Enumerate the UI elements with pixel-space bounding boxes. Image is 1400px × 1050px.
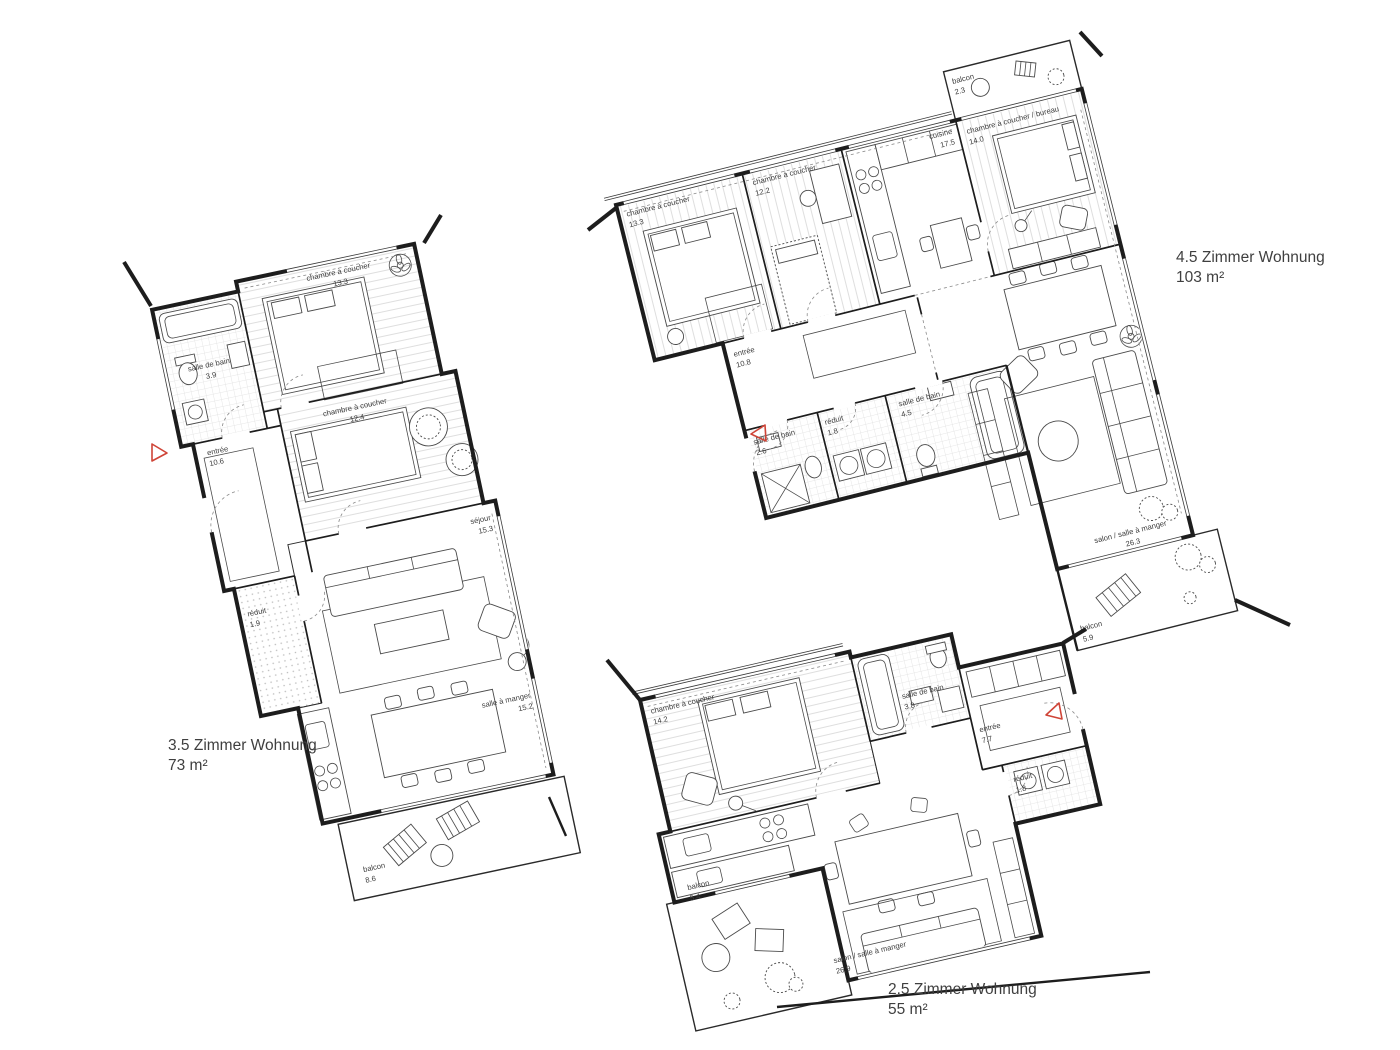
title-apartment-2_5: 2.5 Zimmer Wohnung bbox=[888, 981, 1037, 998]
area-apartment-3_5: 73 m² bbox=[168, 757, 208, 774]
context-wall bbox=[124, 262, 151, 306]
apartment-4_5: chambre à coucher 13.3 chambre à coucher… bbox=[594, 34, 1237, 735]
apartment-2_5: chambre à coucher 14.2 salle de bain 3.8… bbox=[618, 595, 1132, 1031]
label-balcon-2: balcon bbox=[951, 72, 975, 86]
context-wall bbox=[1080, 32, 1102, 56]
apartment-3_5: salle de bain 3.9 chambre à coucher 13.3… bbox=[147, 234, 580, 917]
plant bbox=[1183, 591, 1198, 606]
context-wall bbox=[549, 797, 566, 836]
svg-text:5.4: 5.4 bbox=[689, 892, 701, 903]
context-wall bbox=[607, 660, 640, 700]
svg-text:2.3: 2.3 bbox=[954, 85, 966, 96]
label-balcon: balcon bbox=[362, 861, 386, 874]
entrance-direction-icon bbox=[152, 444, 167, 461]
context-wall bbox=[1235, 600, 1290, 625]
plant bbox=[1172, 541, 1204, 573]
plant bbox=[722, 991, 741, 1010]
plant bbox=[1046, 67, 1065, 86]
floor-plan-sheet: salle de bain 3.9 chambre à coucher 13.3… bbox=[0, 0, 1400, 1050]
context-wall bbox=[588, 208, 616, 230]
floor-plans-svg: salle de bain 3.9 chambre à coucher 13.3… bbox=[0, 0, 1400, 1050]
balcony-furniture bbox=[691, 893, 805, 1014]
svg-text:5.9: 5.9 bbox=[1082, 633, 1094, 644]
title-apartment-4_5: 4.5 Zimmer Wohnung bbox=[1176, 249, 1325, 266]
svg-text:8.6: 8.6 bbox=[364, 874, 376, 885]
area-apartment-4_5: 103 m² bbox=[1176, 269, 1224, 286]
chair bbox=[1059, 204, 1089, 231]
area-apartment-2_5: 55 m² bbox=[888, 1001, 928, 1018]
balcony-furniture bbox=[378, 799, 487, 877]
context-wall bbox=[424, 215, 441, 243]
title-apartment-3_5: 3.5 Zimmer Wohnung bbox=[168, 737, 317, 754]
